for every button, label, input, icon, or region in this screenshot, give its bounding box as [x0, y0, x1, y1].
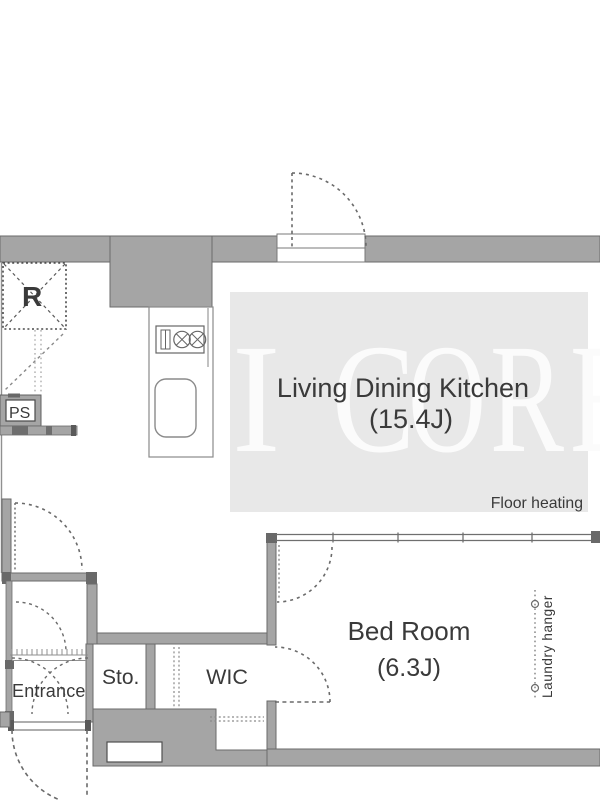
- svg-text:Entrance: Entrance: [12, 681, 86, 701]
- svg-text:Laundry hanger: Laundry hanger: [540, 595, 555, 698]
- svg-text:Bed Room: Bed Room: [348, 616, 471, 646]
- svg-text:E: E: [570, 313, 600, 486]
- svg-text:(6.3J): (6.3J): [377, 654, 441, 682]
- svg-text:Sto.: Sto.: [102, 666, 139, 689]
- svg-text:PS: PS: [9, 405, 30, 422]
- svg-text:Floor heating: Floor heating: [491, 495, 583, 512]
- svg-text:I: I: [232, 312, 280, 485]
- svg-text:Living Dining Kitchen: Living Dining Kitchen: [277, 373, 529, 403]
- svg-text:WIC: WIC: [206, 665, 248, 689]
- svg-text:(15.4J): (15.4J): [369, 404, 453, 434]
- svg-text:R: R: [22, 281, 42, 312]
